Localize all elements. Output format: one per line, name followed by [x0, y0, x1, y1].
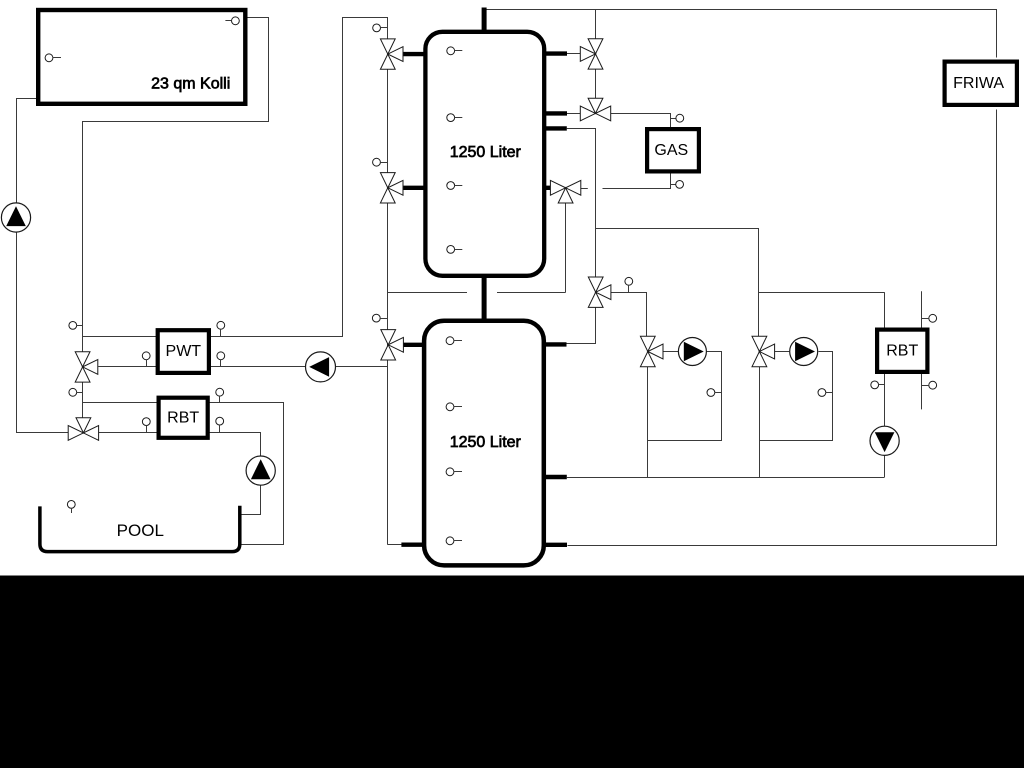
svg-text:RBT: RBT: [167, 409, 199, 426]
svg-text:GAS: GAS: [654, 142, 688, 159]
svg-text:PWT: PWT: [166, 343, 202, 360]
svg-text:RBT: RBT: [886, 342, 918, 359]
svg-text:POOL: POOL: [117, 521, 164, 540]
svg-text:FRIWA: FRIWA: [953, 75, 1004, 92]
svg-text:1250 Liter: 1250 Liter: [450, 144, 522, 161]
svg-text:23 qm Kolli: 23 qm Kolli: [151, 75, 230, 92]
svg-text:1250 Liter: 1250 Liter: [450, 434, 522, 451]
